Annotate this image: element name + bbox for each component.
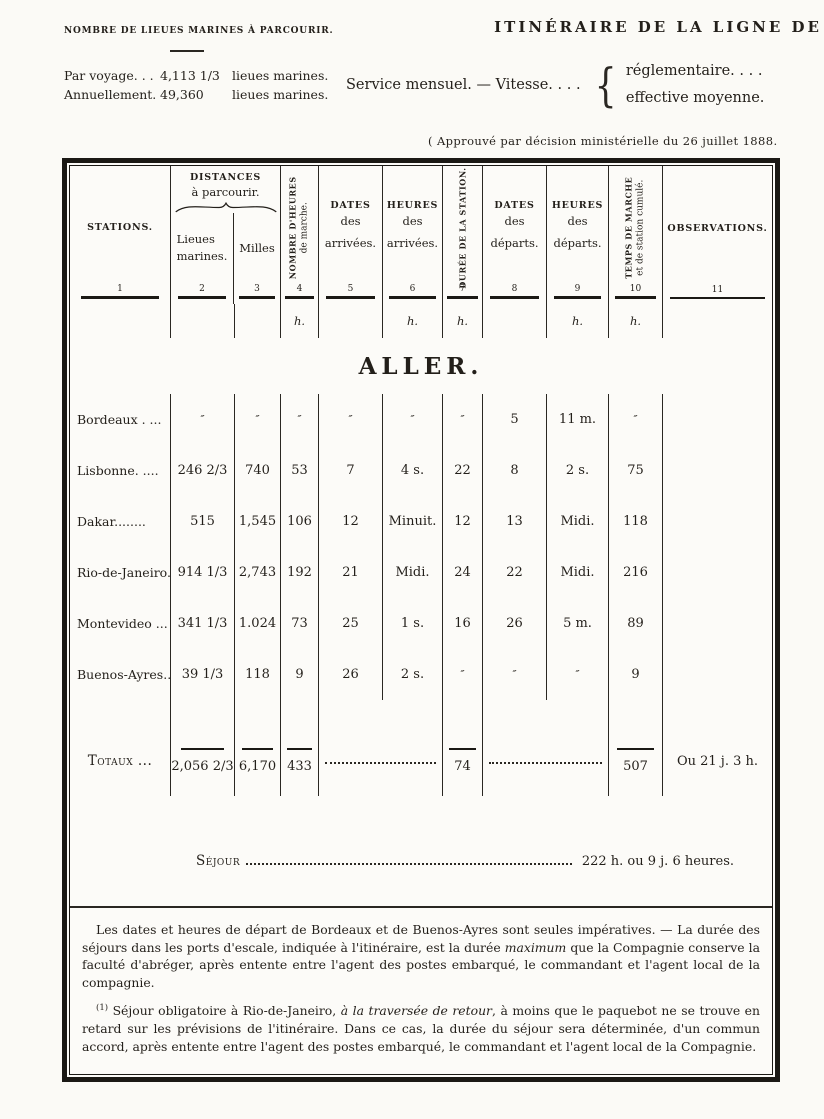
col-number: 1 xyxy=(117,284,123,294)
cell-heure-arrivee: 2 s. xyxy=(382,649,442,700)
cell-observations xyxy=(662,649,772,700)
cell-lieues: ″ xyxy=(170,394,234,445)
col-dates-departs-header: DATES des départs. 8 xyxy=(482,166,546,304)
unit-h-arrivees: h. xyxy=(382,304,442,338)
footnotes: Les dates et heures de départ de Bordeau… xyxy=(70,908,772,1074)
cell-lieues: 914 1/3 xyxy=(170,547,234,598)
totals-label: Totaux ... xyxy=(88,753,153,769)
dates-dep-1: DATES xyxy=(494,200,534,211)
unit-h-departs: h. xyxy=(546,304,608,338)
gap-cell xyxy=(546,700,608,726)
header-rule xyxy=(615,296,656,299)
cell-observations xyxy=(662,598,772,649)
cell-date-depart: 26 xyxy=(482,598,546,649)
cell-observations xyxy=(662,547,772,598)
dates-arr-2: des xyxy=(340,211,360,233)
gap-cell xyxy=(382,700,442,726)
total-rule xyxy=(181,748,224,751)
cell-date-arrivee: 12 xyxy=(318,496,382,547)
cell-date-arrivee: 26 xyxy=(318,649,382,700)
dates-dep-3: départs. xyxy=(490,233,538,255)
col-stations-header: STATIONS. 1 xyxy=(70,166,170,304)
lieues-label-1: Lieues xyxy=(177,231,228,248)
gap-cell xyxy=(318,700,382,726)
station-name: Dakar........ xyxy=(70,496,170,547)
vitesse-reglementaire: réglementaire. . . . xyxy=(626,58,765,85)
header-rule xyxy=(239,296,275,299)
cell-heure-depart: 2 s. xyxy=(546,445,608,496)
approval-note: ( Approuvé par décision ministérielle du… xyxy=(428,134,778,148)
unit-cell xyxy=(662,304,772,338)
header-rule xyxy=(326,296,375,299)
cell-date-depart: 13 xyxy=(482,496,546,547)
footnote-2-text: Séjour obligatoire à Rio-de-Janeiro, xyxy=(108,1004,341,1019)
cell-observations xyxy=(662,394,772,445)
cell-lieues: 341 1/3 xyxy=(170,598,234,649)
cell-heure-arrivee: ″ xyxy=(382,394,442,445)
col-dates-arrivees-header: DATES des arrivées. 5 xyxy=(318,166,382,304)
totals-row: Totaux ... 2,056 2/3 6,170 433 74 507 Ou… xyxy=(70,726,772,796)
dot-leader xyxy=(489,762,602,764)
dot-leader xyxy=(325,762,436,764)
itinerary-table: STATIONS. 1 DISTANCES à parcourir. Lieue… xyxy=(69,165,773,1075)
header-rule xyxy=(490,296,539,299)
service-block: Service mensuel. — Vitesse. . . . { régl… xyxy=(346,58,764,112)
cell-heure-arrivee: 4 s. xyxy=(382,445,442,496)
itinerary-table-frame: STATIONS. 1 DISTANCES à parcourir. Lieue… xyxy=(62,158,780,1082)
header-rule xyxy=(285,296,314,299)
spacer xyxy=(70,882,772,906)
unit-h-temps: h. xyxy=(608,304,662,338)
col-number: 8 xyxy=(512,284,518,294)
cell-heure-depart: 11 m. xyxy=(546,394,608,445)
unit-cell xyxy=(318,304,382,338)
cell-lieues: 515 xyxy=(170,496,234,547)
footnote-2: (1) Séjour obligatoire à Rio-de-Janeiro,… xyxy=(82,1002,760,1055)
cell-temps-cumule: 89 xyxy=(608,598,662,649)
cell-milles: 740 xyxy=(234,445,280,496)
leagues-title: NOMBRE DE LIEUES MARINES À PARCOURIR. xyxy=(64,26,333,36)
total-observation: Ou 21 j. 3 h. xyxy=(662,726,772,796)
col-number: 10 xyxy=(630,284,641,294)
totals-dots xyxy=(482,726,608,796)
col-duree-station-header: DURÉE DE LA STATION. 7 xyxy=(442,166,482,304)
cell-temps-cumule: 9 xyxy=(608,649,662,700)
cell-temps-cumule: ″ xyxy=(608,394,662,445)
cell-date-arrivee: 7 xyxy=(318,445,382,496)
col-number: 6 xyxy=(410,284,416,294)
duree-station-label: DURÉE DE LA STATION. xyxy=(457,167,469,288)
cell-duree: 22 xyxy=(442,445,482,496)
temps-cumule-label-1: TEMPS DE MARCHE xyxy=(623,176,635,278)
spacer xyxy=(70,796,772,840)
heures-marche-label-2: de marche. xyxy=(299,176,313,279)
leagues-title-rule xyxy=(170,50,204,52)
dates-dep-2: des xyxy=(504,211,524,233)
total-milles: 6,170 xyxy=(234,726,280,796)
header-rule xyxy=(554,296,602,299)
footnote-2-italic: à la traversée de retour xyxy=(341,1004,492,1019)
gap-cell xyxy=(170,700,234,726)
brace-icon: { xyxy=(594,62,616,108)
col-observations-header: OBSERVATIONS. 11 xyxy=(662,166,772,304)
cell-date-depart: 22 xyxy=(482,547,546,598)
unit-cell xyxy=(170,304,234,338)
cell-marche: 106 xyxy=(280,496,318,547)
cell-milles: 1.024 xyxy=(234,598,280,649)
cell-heure-arrivee: Midi. xyxy=(382,547,442,598)
voyage-unit: lieues marines. xyxy=(232,66,328,85)
leagues-row-annual: Annuellement. 49,360 lieues marines. xyxy=(64,85,328,104)
total-temps: 507 xyxy=(608,726,662,796)
cell-heure-depart: ″ xyxy=(546,649,608,700)
col-number: 2 xyxy=(199,284,205,294)
cell-milles: 1,545 xyxy=(234,496,280,547)
cell-marche: 192 xyxy=(280,547,318,598)
total-duree-value: 74 xyxy=(454,759,471,774)
gap-cell xyxy=(482,700,546,726)
total-temps-value: 507 xyxy=(623,759,648,774)
cell-duree: 24 xyxy=(442,547,482,598)
vitesse-effective: effective moyenne. xyxy=(626,85,765,112)
section-title: ALLER. xyxy=(359,353,484,380)
gap-cell xyxy=(280,700,318,726)
col-number: 11 xyxy=(712,285,723,295)
footnote-1-italic: maximum xyxy=(505,940,567,955)
dot-leader xyxy=(246,863,572,865)
annual-unit: lieues marines. xyxy=(232,85,328,104)
col-number: 5 xyxy=(348,284,354,294)
cell-duree: 16 xyxy=(442,598,482,649)
gap-cell xyxy=(70,700,170,726)
total-rule xyxy=(617,748,653,751)
header-rule xyxy=(447,296,477,299)
gap-band xyxy=(70,700,772,726)
page-title: ITINÉRAIRE DE LA LIGNE DE xyxy=(494,18,822,36)
totals-dots xyxy=(318,726,442,796)
total-observation-value: Ou 21 j. 3 h. xyxy=(677,754,758,769)
cell-date-arrivee: 25 xyxy=(318,598,382,649)
station-name: Montevideo ... xyxy=(70,598,170,649)
cell-heure-depart: 5 m. xyxy=(546,598,608,649)
cell-heure-arrivee: Minuit. xyxy=(382,496,442,547)
cell-milles: 118 xyxy=(234,649,280,700)
header-rule xyxy=(178,296,226,299)
vitesse-options: réglementaire. . . . effective moyenne. xyxy=(626,58,765,112)
leagues-summary: Par voyage. . . 4,113 1/3 lieues marines… xyxy=(64,66,328,105)
units-row: h. h. h. h. h. xyxy=(70,304,772,338)
header-rule xyxy=(389,296,435,299)
cell-date-arrivee: 21 xyxy=(318,547,382,598)
unit-cell xyxy=(234,304,280,338)
voyage-label: Par voyage. . . xyxy=(64,66,160,85)
cell-lieues: 246 2/3 xyxy=(170,445,234,496)
station-name: Bordeaux . ... xyxy=(70,394,170,445)
unit-cell xyxy=(482,304,546,338)
station-name: Lisbonne. .... xyxy=(70,445,170,496)
total-marche-value: 433 xyxy=(287,759,312,774)
cell-duree: 12 xyxy=(442,496,482,547)
col-number: 9 xyxy=(575,284,581,294)
voyage-value: 4,113 1/3 xyxy=(160,66,232,85)
cell-observations xyxy=(662,445,772,496)
col-number: 4 xyxy=(297,284,303,294)
col-heures-marche-header: NOMBRE D'HEURES de marche. 4 xyxy=(280,166,318,304)
total-milles-value: 6,170 xyxy=(239,759,276,774)
cell-date-arrivee: ″ xyxy=(318,394,382,445)
total-rule xyxy=(287,748,312,751)
total-marche: 433 xyxy=(280,726,318,796)
cell-lieues: 39 1/3 xyxy=(170,649,234,700)
sejour-row: Séjour 222 h. ou 9 j. 6 heures. xyxy=(70,840,772,882)
footnote-2-marker: (1) xyxy=(96,1003,108,1013)
cell-duree: ″ xyxy=(442,649,482,700)
total-rule xyxy=(449,748,476,751)
leagues-row-voyage: Par voyage. . . 4,113 1/3 lieues marines… xyxy=(64,66,328,85)
col-number: 3 xyxy=(254,284,260,294)
col-lieues-header: Lieues marines. 2 xyxy=(171,213,233,304)
header-rule xyxy=(81,296,159,299)
cell-marche: 73 xyxy=(280,598,318,649)
sejour-value: 222 h. ou 9 j. 6 heures. xyxy=(582,854,734,869)
station-name: Buenos-Ayres.. xyxy=(70,649,170,700)
scanned-itinerary-page: { "ink_color": "#231f1a", "paper_color":… xyxy=(0,0,824,1119)
dates-arr-3: arrivées. xyxy=(325,233,376,255)
temps-cumule-label-2: et de station cumulé. xyxy=(635,176,649,278)
table-body: Bordeaux . ... ″ ″ ″ ″ ″ ″ 5 11 m. ″ Lis… xyxy=(70,394,772,700)
cell-marche: 9 xyxy=(280,649,318,700)
cell-milles: 2,743 xyxy=(234,547,280,598)
cell-marche: ″ xyxy=(280,394,318,445)
gap-cell xyxy=(234,700,280,726)
footnote-1: Les dates et heures de départ de Bordeau… xyxy=(82,921,760,991)
cell-temps-cumule: 216 xyxy=(608,547,662,598)
gap-cell xyxy=(608,700,662,726)
total-rule xyxy=(242,748,273,751)
annual-label: Annuellement. xyxy=(64,85,160,104)
dates-arr-1: DATES xyxy=(330,200,370,211)
cell-date-depart: 5 xyxy=(482,394,546,445)
lieues-label-2: marines. xyxy=(177,248,228,265)
total-lieues-value: 2,056 2/3 xyxy=(171,759,233,774)
col-temps-cumule-header: TEMPS DE MARCHE et de station cumulé. 10 xyxy=(608,166,662,304)
stations-label: STATIONS. xyxy=(87,222,153,233)
cell-marche: 53 xyxy=(280,445,318,496)
unit-cell xyxy=(70,304,170,338)
unit-h-marche: h. xyxy=(280,304,318,338)
cell-duree: ″ xyxy=(442,394,482,445)
gap-cell xyxy=(442,700,482,726)
total-lieues: 2,056 2/3 xyxy=(170,726,234,796)
cell-date-depart: 8 xyxy=(482,445,546,496)
service-line: Service mensuel. — Vitesse. . . . xyxy=(346,77,581,93)
cell-date-depart: ″ xyxy=(482,649,546,700)
cell-temps-cumule: 75 xyxy=(608,445,662,496)
observations-label: OBSERVATIONS. xyxy=(667,223,767,234)
section-title-band: ALLER. xyxy=(70,338,772,394)
cell-observations xyxy=(662,496,772,547)
cell-heure-depart: Midi. xyxy=(546,547,608,598)
cell-heure-depart: Midi. xyxy=(546,496,608,547)
sejour-label: Séjour xyxy=(196,853,240,869)
heures-marche-label-1: NOMBRE D'HEURES xyxy=(287,176,299,279)
total-duree: 74 xyxy=(442,726,482,796)
cell-heure-arrivee: 1 s. xyxy=(382,598,442,649)
cell-milles: ″ xyxy=(234,394,280,445)
gap-cell xyxy=(662,700,772,726)
header-rule xyxy=(670,297,766,299)
table-header: STATIONS. 1 DISTANCES à parcourir. Lieue… xyxy=(70,166,772,304)
cell-temps-cumule: 118 xyxy=(608,496,662,547)
station-name: Rio-de-Janeiro. xyxy=(70,547,170,598)
unit-h-duree: h. xyxy=(442,304,482,338)
annual-value: 49,360 xyxy=(160,85,232,104)
